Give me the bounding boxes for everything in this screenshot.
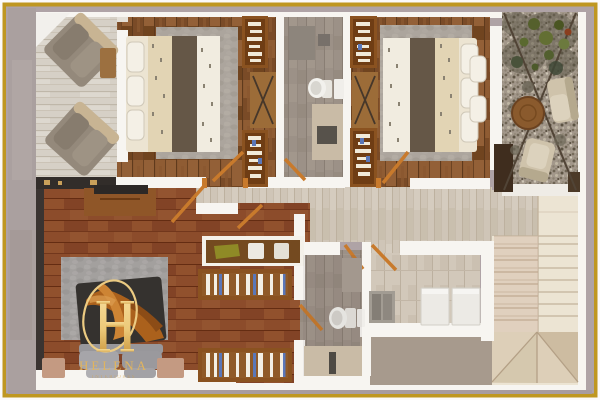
svg-text:INTERIORES: INTERIORES <box>92 375 136 380</box>
svg-text:HELENA: HELENA <box>79 358 149 373</box>
